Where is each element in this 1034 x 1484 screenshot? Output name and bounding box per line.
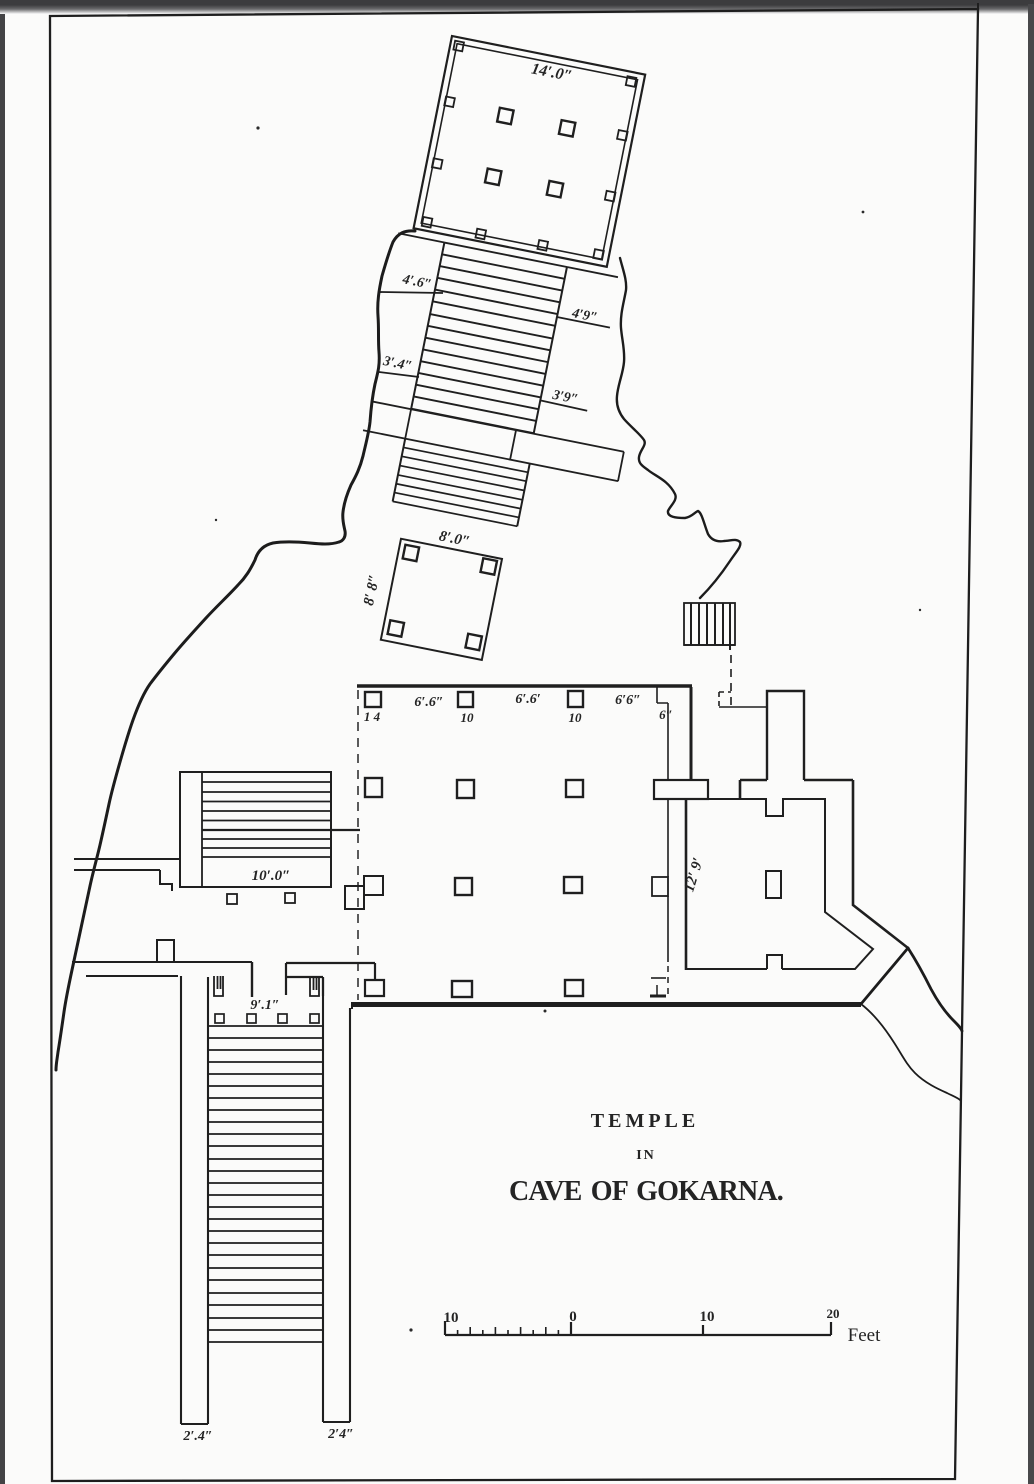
svg-text:CAVE OF GOKARNA.: CAVE OF GOKARNA. bbox=[509, 1176, 783, 1207]
svg-text:2′.4″: 2′.4″ bbox=[182, 1429, 212, 1444]
svg-text:6″: 6″ bbox=[659, 707, 673, 722]
svg-text:6′6″: 6′6″ bbox=[615, 693, 641, 708]
svg-text:10: 10 bbox=[569, 710, 583, 725]
svg-text:10′.0″: 10′.0″ bbox=[252, 868, 291, 884]
svg-text:10: 10 bbox=[444, 1310, 459, 1326]
svg-text:9′.1″: 9′.1″ bbox=[250, 998, 279, 1013]
svg-text:6′.6″: 6′.6″ bbox=[414, 695, 443, 710]
svg-text:0: 0 bbox=[569, 1309, 577, 1325]
svg-text:20: 20 bbox=[827, 1306, 840, 1321]
svg-text:1 4: 1 4 bbox=[364, 709, 381, 724]
svg-text:2′4″: 2′4″ bbox=[327, 1427, 354, 1442]
svg-text:10: 10 bbox=[700, 1309, 715, 1325]
svg-text:IN: IN bbox=[636, 1148, 656, 1163]
svg-text:6′.6′: 6′.6′ bbox=[515, 692, 540, 707]
svg-text:TEMPLE: TEMPLE bbox=[591, 1110, 699, 1132]
svg-text:10: 10 bbox=[461, 710, 475, 725]
svg-text:Feet: Feet bbox=[848, 1325, 881, 1346]
